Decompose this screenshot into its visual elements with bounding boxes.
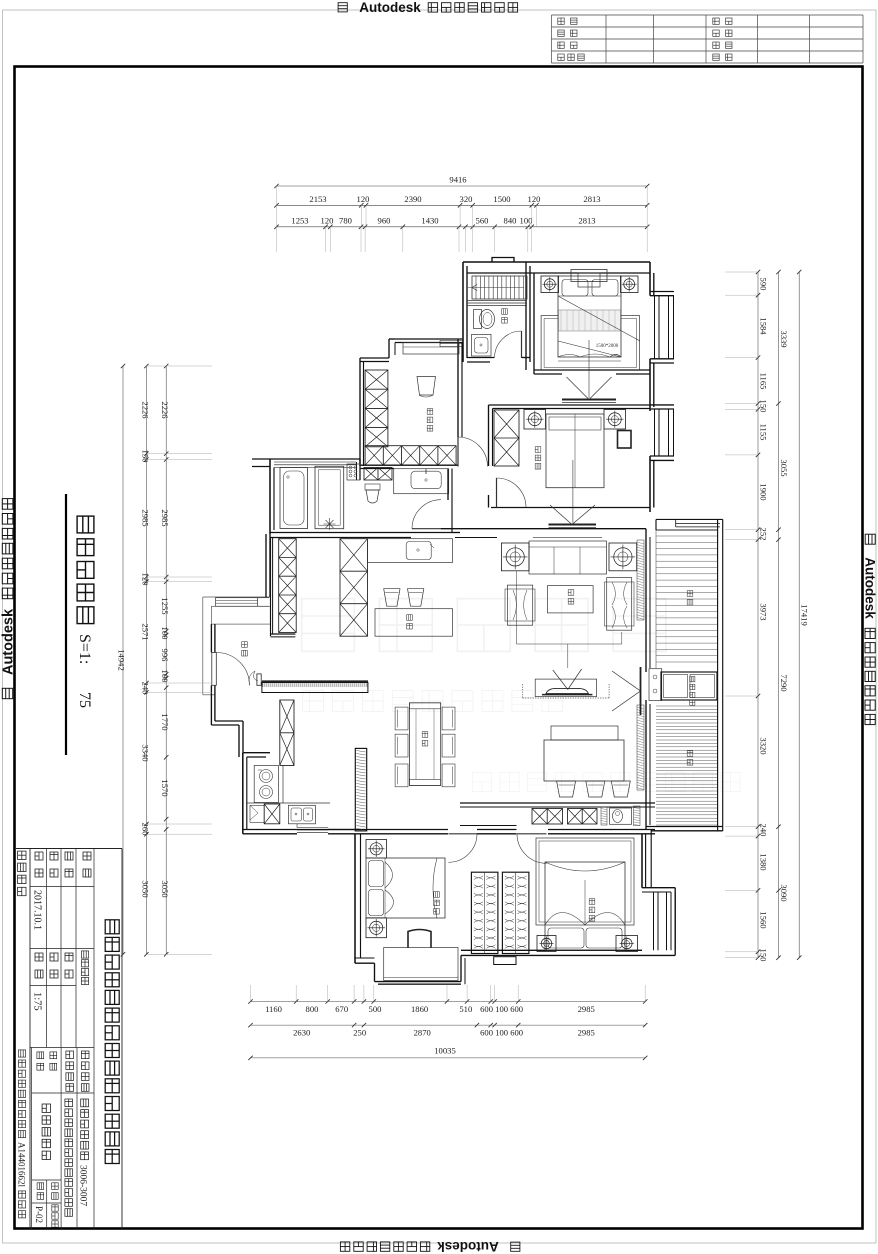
svg-text:250: 250 xyxy=(353,1028,366,1038)
svg-text:2390: 2390 xyxy=(404,194,421,204)
svg-text:120: 120 xyxy=(528,194,541,204)
svg-text:2870: 2870 xyxy=(414,1028,431,1038)
svg-text:1900: 1900 xyxy=(759,483,769,500)
svg-text:100: 100 xyxy=(160,627,170,640)
svg-text:7290: 7290 xyxy=(779,674,789,691)
svg-text:9416: 9416 xyxy=(449,175,467,185)
svg-text:Autodesk: Autodesk xyxy=(437,1239,499,1254)
svg-text:P-02: P-02 xyxy=(34,1206,44,1223)
svg-text:1584: 1584 xyxy=(759,317,769,335)
svg-text:Autodesk: Autodesk xyxy=(359,0,421,15)
svg-text:S=1:: S=1: xyxy=(76,634,93,664)
svg-text:2226: 2226 xyxy=(140,401,150,419)
svg-text:1160: 1160 xyxy=(265,1004,282,1014)
svg-text:3973: 3973 xyxy=(759,603,769,620)
svg-text:150: 150 xyxy=(759,949,769,962)
svg-text:560: 560 xyxy=(476,215,489,225)
svg-text:240: 240 xyxy=(759,824,769,837)
svg-text:2153: 2153 xyxy=(309,194,326,204)
svg-text:Autodesk: Autodesk xyxy=(1,608,17,675)
svg-text:1380: 1380 xyxy=(759,853,769,870)
svg-text:252: 252 xyxy=(759,528,769,541)
svg-text:600 100 600: 600 100 600 xyxy=(480,1004,523,1014)
svg-text:1:75: 1:75 xyxy=(32,992,43,1011)
svg-text:1570: 1570 xyxy=(160,779,170,796)
svg-text:2985: 2985 xyxy=(140,509,150,526)
svg-text:17419: 17419 xyxy=(800,604,810,625)
svg-text:3339: 3339 xyxy=(779,330,789,347)
svg-text:3320: 3320 xyxy=(759,737,769,754)
svg-text:2985: 2985 xyxy=(578,1004,595,1014)
svg-text:1253: 1253 xyxy=(291,215,308,225)
svg-text:3050: 3050 xyxy=(160,880,170,897)
svg-text:1155: 1155 xyxy=(759,424,769,441)
svg-text:2985: 2985 xyxy=(578,1028,595,1038)
svg-text:3340: 3340 xyxy=(140,744,150,761)
svg-text:2813: 2813 xyxy=(583,194,600,204)
svg-text:A14401662l: A14401662l xyxy=(17,1142,27,1187)
svg-text:150: 150 xyxy=(140,450,150,463)
svg-text:1500: 1500 xyxy=(493,194,510,204)
svg-text:100: 100 xyxy=(160,670,170,683)
svg-text:3055: 3055 xyxy=(779,459,789,476)
svg-text:2226: 2226 xyxy=(160,401,170,419)
svg-text:1430: 1430 xyxy=(421,215,438,225)
svg-text:3050: 3050 xyxy=(140,880,150,897)
svg-text:1560: 1560 xyxy=(759,911,769,928)
svg-text:10035: 10035 xyxy=(434,1046,455,1056)
svg-text:150: 150 xyxy=(759,400,769,413)
svg-text:3090: 3090 xyxy=(779,884,789,901)
svg-text:590: 590 xyxy=(759,278,769,291)
svg-text:320: 320 xyxy=(460,194,473,204)
svg-text:2630: 2630 xyxy=(293,1028,310,1038)
svg-text:2017.10.1: 2017.10.1 xyxy=(32,890,43,930)
svg-text:Autodesk: Autodesk xyxy=(863,557,878,619)
svg-text:100: 100 xyxy=(520,215,533,225)
svg-text:670: 670 xyxy=(335,1004,348,1014)
svg-text:780: 780 xyxy=(339,215,352,225)
svg-text:75: 75 xyxy=(76,692,93,708)
svg-text:2985: 2985 xyxy=(160,509,170,526)
svg-text:1500*2000: 1500*2000 xyxy=(596,344,619,349)
svg-text:1770: 1770 xyxy=(160,713,170,730)
svg-text:996: 996 xyxy=(160,649,170,663)
svg-text:120: 120 xyxy=(140,573,150,586)
svg-text:960: 960 xyxy=(378,215,391,225)
svg-text:120: 120 xyxy=(321,215,334,225)
svg-text:1165: 1165 xyxy=(759,373,769,390)
svg-text:120: 120 xyxy=(357,194,370,204)
svg-text:2813: 2813 xyxy=(578,215,595,225)
svg-text:260: 260 xyxy=(140,823,150,836)
svg-text:800: 800 xyxy=(306,1004,319,1014)
svg-text:1255: 1255 xyxy=(160,597,170,614)
svg-text:1860: 1860 xyxy=(411,1004,428,1014)
svg-text:14942: 14942 xyxy=(117,649,127,670)
svg-text:510: 510 xyxy=(459,1004,472,1014)
svg-text:600 100 600: 600 100 600 xyxy=(480,1028,523,1038)
svg-text:500: 500 xyxy=(369,1004,382,1014)
svg-text:3006-3007: 3006-3007 xyxy=(78,1165,88,1206)
svg-text:840: 840 xyxy=(504,215,517,225)
svg-text:2571: 2571 xyxy=(140,623,150,640)
